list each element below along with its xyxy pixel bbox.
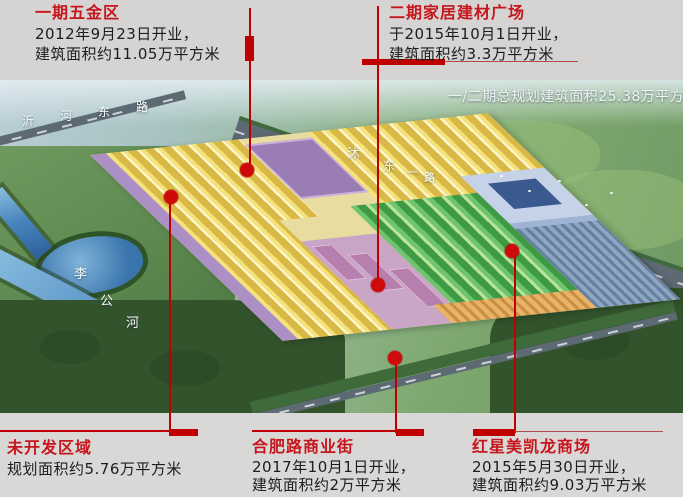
road-label-char: 沭 <box>347 148 360 161</box>
marker-dot-hefei <box>388 351 402 365</box>
bird <box>610 192 613 194</box>
marker-dot-phase2 <box>371 278 385 292</box>
leader-accent-phase1 <box>245 36 254 61</box>
phase1-line2: 建筑面积约11.05万平方米 <box>35 47 220 62</box>
bird <box>500 175 503 177</box>
aerial-photo: 沂 河 东 路 沭 东 一 路 李 公 河 <box>0 80 683 413</box>
tree-cluster <box>150 350 220 386</box>
river-label-char: 河 <box>126 317 139 330</box>
phase2-line2: 建筑面积约3.3万平方米 <box>389 47 554 62</box>
marker-dot-phase1 <box>240 163 254 177</box>
bird <box>558 180 561 182</box>
total-planned-area-label: 一/二期总规划建筑面积25.38万平方米 <box>448 86 683 106</box>
road-label-char: 东 <box>98 106 110 118</box>
leader-line-phase1 <box>249 8 251 166</box>
road-label-char: 东 <box>383 160 395 172</box>
leader-line-hefei <box>395 360 397 433</box>
leader-line-phase2 <box>377 6 379 281</box>
marker-dot-undeveloped <box>164 190 178 204</box>
road-label-char: 一 <box>407 167 418 178</box>
hefei-line1: 2017年10月1日开业， <box>252 460 415 475</box>
leader-accent-hefei <box>396 429 424 436</box>
infographic-canvas: 沂 河 东 路 沭 东 一 路 李 公 河 <box>0 0 683 497</box>
tree-cluster <box>40 330 100 364</box>
leader-hline-undeveloped <box>0 430 170 432</box>
phase2-title: 二期家居建材广场 <box>389 5 525 21</box>
river-label-char: 李 <box>74 268 87 281</box>
road-label-char: 路 <box>136 101 148 113</box>
phase1-title: 一期五金区 <box>35 5 120 21</box>
road-label-char: 河 <box>60 110 72 122</box>
macalline-title: 红星美凯龙商场 <box>472 439 591 455</box>
phase1-line1: 2012年9月23日开业， <box>35 27 198 42</box>
marker-dot-macalline <box>505 244 519 258</box>
road-label-char: 沂 <box>22 115 34 127</box>
undeveloped-title: 未开发区域 <box>7 440 92 456</box>
bird <box>528 190 531 192</box>
macalline-line1: 2015年5月30日开业， <box>472 460 635 475</box>
hefei-title: 合肥路商业街 <box>252 439 354 455</box>
macalline-line2: 建筑面积约9.03万平方米 <box>472 478 647 493</box>
hefei-line2: 建筑面积约2万平方米 <box>252 478 402 493</box>
road-label-char: 路 <box>424 172 435 183</box>
leader-ext-macalline <box>515 431 663 432</box>
undeveloped-line1: 规划面积约5.76万平方米 <box>7 462 182 477</box>
bird <box>585 204 588 206</box>
leader-line-undeveloped <box>169 200 171 433</box>
leader-hline-hefei <box>252 430 396 432</box>
phase2-line1: 于2015年10月1日开业， <box>389 27 568 42</box>
leader-line-macalline <box>514 252 516 433</box>
river-label-char: 公 <box>100 295 113 308</box>
leader-accent-macalline <box>473 429 515 436</box>
leader-accent-undeveloped <box>169 429 198 436</box>
